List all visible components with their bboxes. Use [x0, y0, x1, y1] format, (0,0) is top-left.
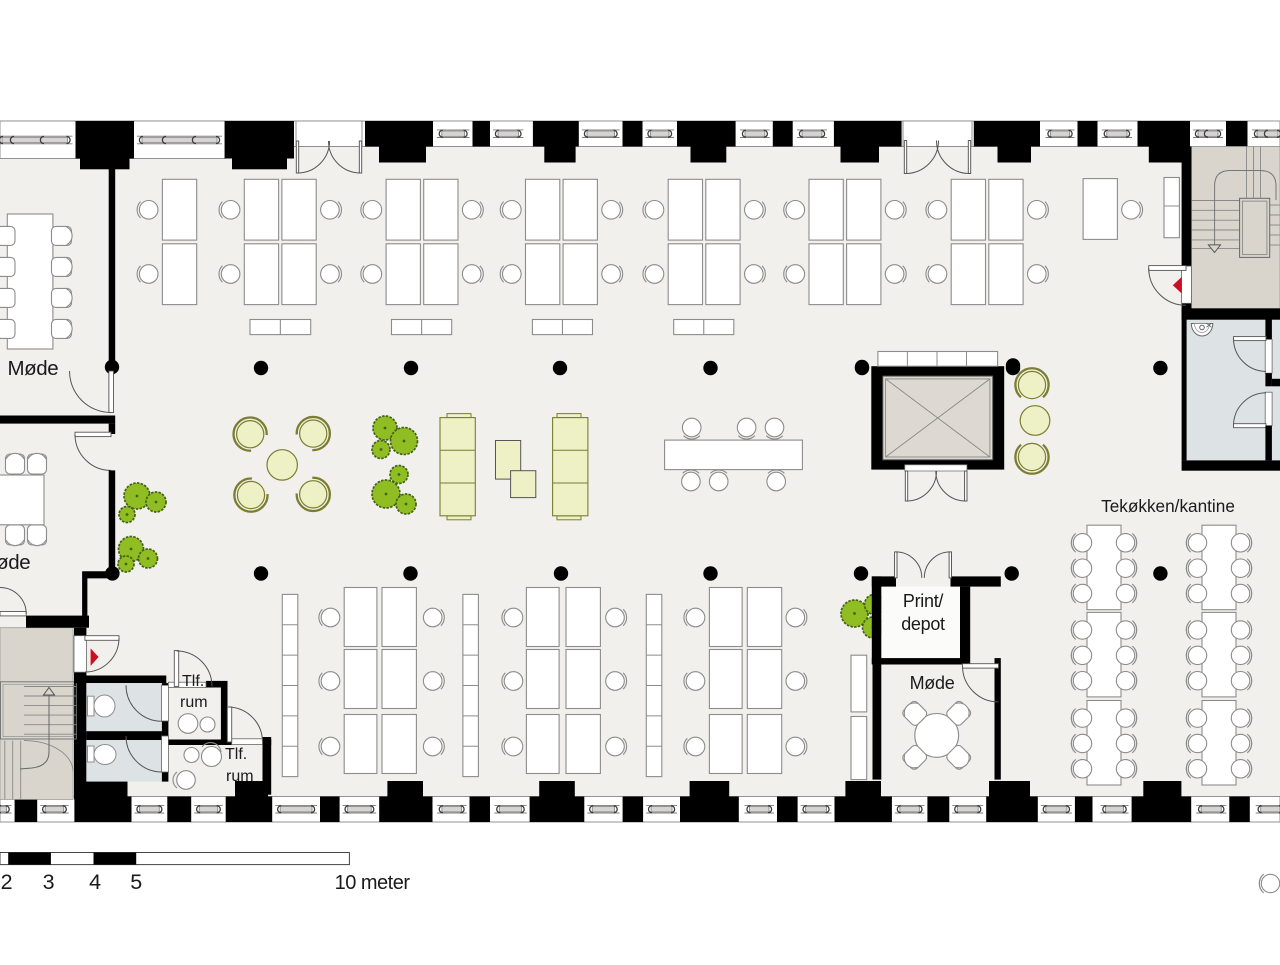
svg-text:rum: rum [226, 768, 254, 785]
svg-text:Møde: Møde [0, 551, 30, 574]
svg-text:3: 3 [43, 870, 55, 894]
svg-text:Print/: Print/ [903, 591, 944, 611]
svg-text:5: 5 [130, 870, 142, 894]
svg-text:rum: rum [180, 694, 208, 711]
svg-text:Møde: Møde [8, 357, 59, 380]
svg-text:10 meter: 10 meter [335, 872, 411, 894]
svg-text:2: 2 [1, 870, 13, 894]
svg-text:Møde: Møde [910, 673, 955, 693]
svg-text:Tlf.: Tlf. [225, 746, 247, 763]
svg-text:Tlf.: Tlf. [182, 673, 204, 690]
svg-text:Tekøkken/kantine: Tekøkken/kantine [1101, 496, 1235, 516]
svg-text:depot: depot [901, 614, 945, 634]
svg-text:4: 4 [89, 870, 101, 894]
